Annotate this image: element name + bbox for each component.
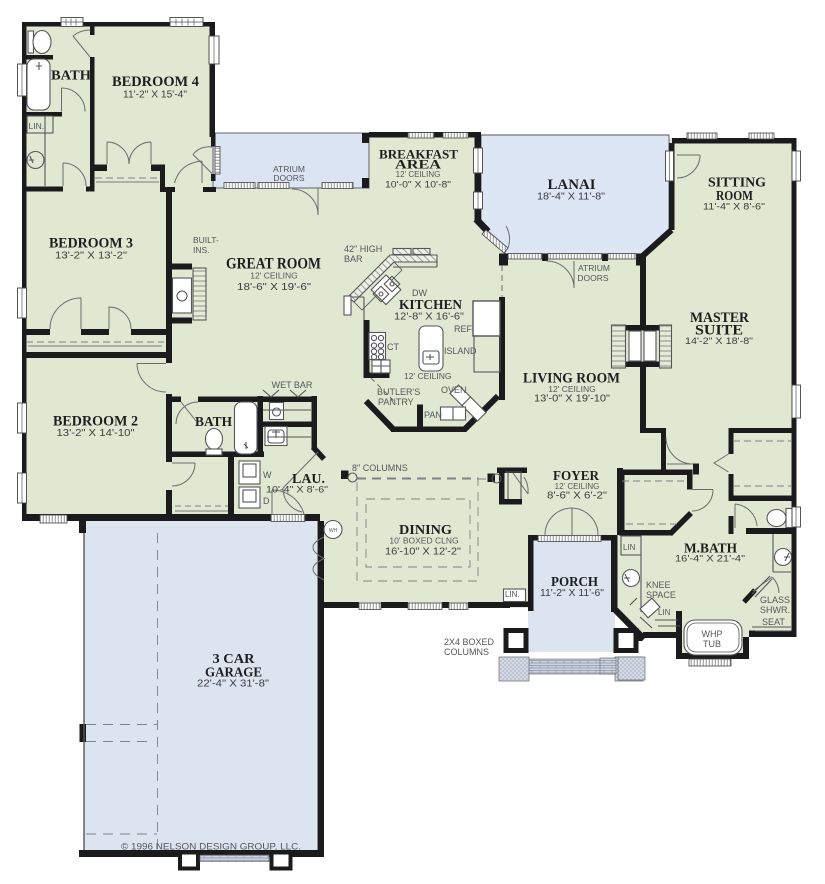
svg-text:16'-10" X 12'-2": 16'-10" X 12'-2" <box>385 547 461 558</box>
svg-text:PANTRY: PANTRY <box>378 397 414 407</box>
svg-text:DOORS: DOORS <box>577 273 609 283</box>
svg-text:ATRIUM: ATRIUM <box>578 263 610 273</box>
svg-text:BEDROOM 3: BEDROOM 3 <box>49 236 133 252</box>
svg-text:BATH: BATH <box>195 414 232 429</box>
svg-text:11'-4" X 8'-6": 11'-4" X 8'-6" <box>703 202 765 213</box>
svg-text:DW: DW <box>412 288 427 298</box>
svg-text:11'-2" X 15'-4": 11'-2" X 15'-4" <box>123 90 187 101</box>
svg-text:42" HIGH: 42" HIGH <box>344 244 382 254</box>
svg-text:8'-6" X 6'-2": 8'-6" X 6'-2" <box>547 491 608 502</box>
svg-text:LIN.: LIN. <box>505 590 520 599</box>
svg-text:GLASS: GLASS <box>760 595 790 605</box>
svg-text:16'-4" X 21'-4": 16'-4" X 21'-4" <box>675 554 745 565</box>
svg-text:BUILT-: BUILT- <box>193 235 219 245</box>
svg-text:LIN: LIN <box>623 543 636 552</box>
svg-text:OVEN: OVEN <box>441 385 467 395</box>
svg-text:PAN: PAN <box>424 410 442 420</box>
svg-text:12'-8" X 16'-6": 12'-8" X 16'-6" <box>394 312 464 323</box>
svg-text:12' CEILING: 12' CEILING <box>548 384 595 394</box>
svg-text:13'-2" X 13'-2": 13'-2" X 13'-2" <box>55 251 127 262</box>
svg-text:12' CEILING: 12' CEILING <box>250 271 297 281</box>
svg-text:8" COLUMNS: 8" COLUMNS <box>352 463 408 473</box>
svg-text:D: D <box>263 496 270 506</box>
svg-text:SPACE: SPACE <box>646 590 676 600</box>
svg-text:SHWR.: SHWR. <box>760 605 790 615</box>
svg-text:BUTLER'S: BUTLER'S <box>377 387 420 397</box>
svg-text:W: W <box>263 470 272 480</box>
svg-text:18'-4" X 11'-8": 18'-4" X 11'-8" <box>537 192 605 203</box>
svg-text:LIN: LIN <box>658 608 671 617</box>
svg-text:22'-4" X 31'-8": 22'-4" X 31'-8" <box>197 679 269 690</box>
svg-text:LIN.: LIN. <box>29 121 45 131</box>
svg-text:12' CEILING: 12' CEILING <box>396 170 441 179</box>
svg-text:WET BAR: WET BAR <box>272 380 313 390</box>
svg-text:SEAT: SEAT <box>762 617 785 627</box>
svg-text:COLUMNS: COLUMNS <box>444 647 489 657</box>
svg-text:KNEE: KNEE <box>646 580 671 590</box>
svg-text:WHP: WHP <box>702 629 723 639</box>
svg-text:BATH: BATH <box>51 69 91 84</box>
svg-text:10'-4" X 8'-6": 10'-4" X 8'-6" <box>266 485 328 496</box>
svg-text:REF: REF <box>454 324 473 334</box>
svg-text:14'-2" X 18'-8": 14'-2" X 18'-8" <box>685 336 753 347</box>
svg-text:WH: WH <box>329 528 338 534</box>
svg-text:13'-0" X 19'-10": 13'-0" X 19'-10" <box>534 394 610 405</box>
svg-text:CT: CT <box>387 342 399 352</box>
svg-text:TUB: TUB <box>703 639 721 649</box>
svg-text:18'-6" X 19'-6": 18'-6" X 19'-6" <box>237 281 311 293</box>
svg-text:ISLAND: ISLAND <box>444 346 477 356</box>
svg-text:DOORS: DOORS <box>273 173 305 183</box>
svg-text:INS.: INS. <box>193 245 210 255</box>
svg-text:13'-2" X 14'-10": 13'-2" X 14'-10" <box>57 428 135 439</box>
svg-text:10'-0" X 10'-8": 10'-0" X 10'-8" <box>385 180 451 191</box>
svg-text:BAR: BAR <box>344 254 363 264</box>
svg-text:2X4 BOXED: 2X4 BOXED <box>444 637 495 647</box>
svg-text:© 1996 NELSON DESIGN GROUP, LL: © 1996 NELSON DESIGN GROUP, LLC. <box>121 842 301 852</box>
svg-text:10' BOXED CLNG: 10' BOXED CLNG <box>389 536 458 546</box>
svg-text:BEDROOM 4: BEDROOM 4 <box>112 74 199 90</box>
svg-text:12' CEILING: 12' CEILING <box>404 371 451 381</box>
svg-text:11'-2" X 11'-6": 11'-2" X 11'-6" <box>540 588 604 599</box>
